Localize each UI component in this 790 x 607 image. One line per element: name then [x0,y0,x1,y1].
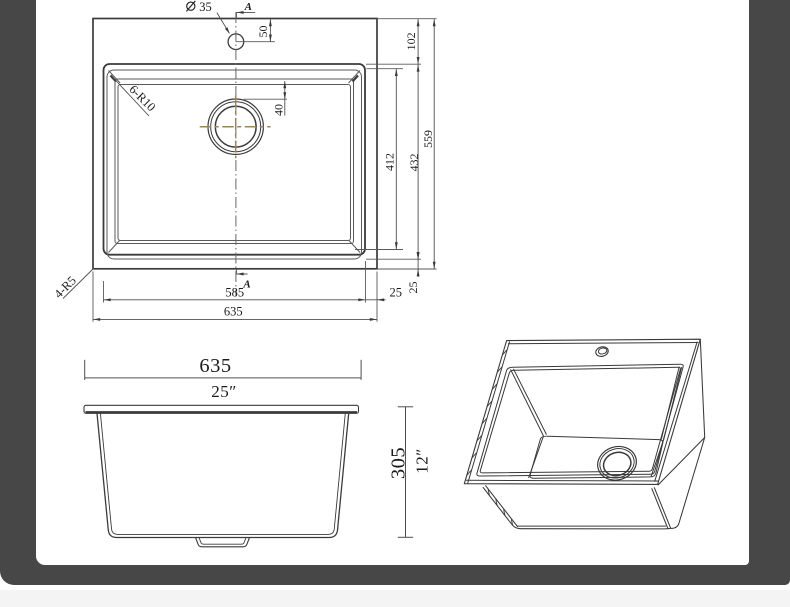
svg-text:432: 432 [407,154,421,172]
svg-text:585: 585 [225,285,244,299]
svg-text:635: 635 [199,355,231,377]
svg-text:35: 35 [199,0,212,14]
svg-text:25: 25 [390,285,403,299]
svg-text:102: 102 [404,32,418,50]
svg-text:305: 305 [388,447,410,479]
svg-text:A: A [244,1,252,13]
svg-text:559: 559 [421,130,435,148]
svg-text:50: 50 [256,26,270,38]
svg-text:25″: 25″ [211,382,237,401]
svg-text:635: 635 [224,304,243,318]
svg-text:12″: 12″ [412,448,431,474]
svg-text:412: 412 [383,153,397,171]
svg-text:4-R5: 4-R5 [51,273,79,301]
svg-text:25: 25 [406,282,420,294]
svg-text:40: 40 [271,104,285,116]
